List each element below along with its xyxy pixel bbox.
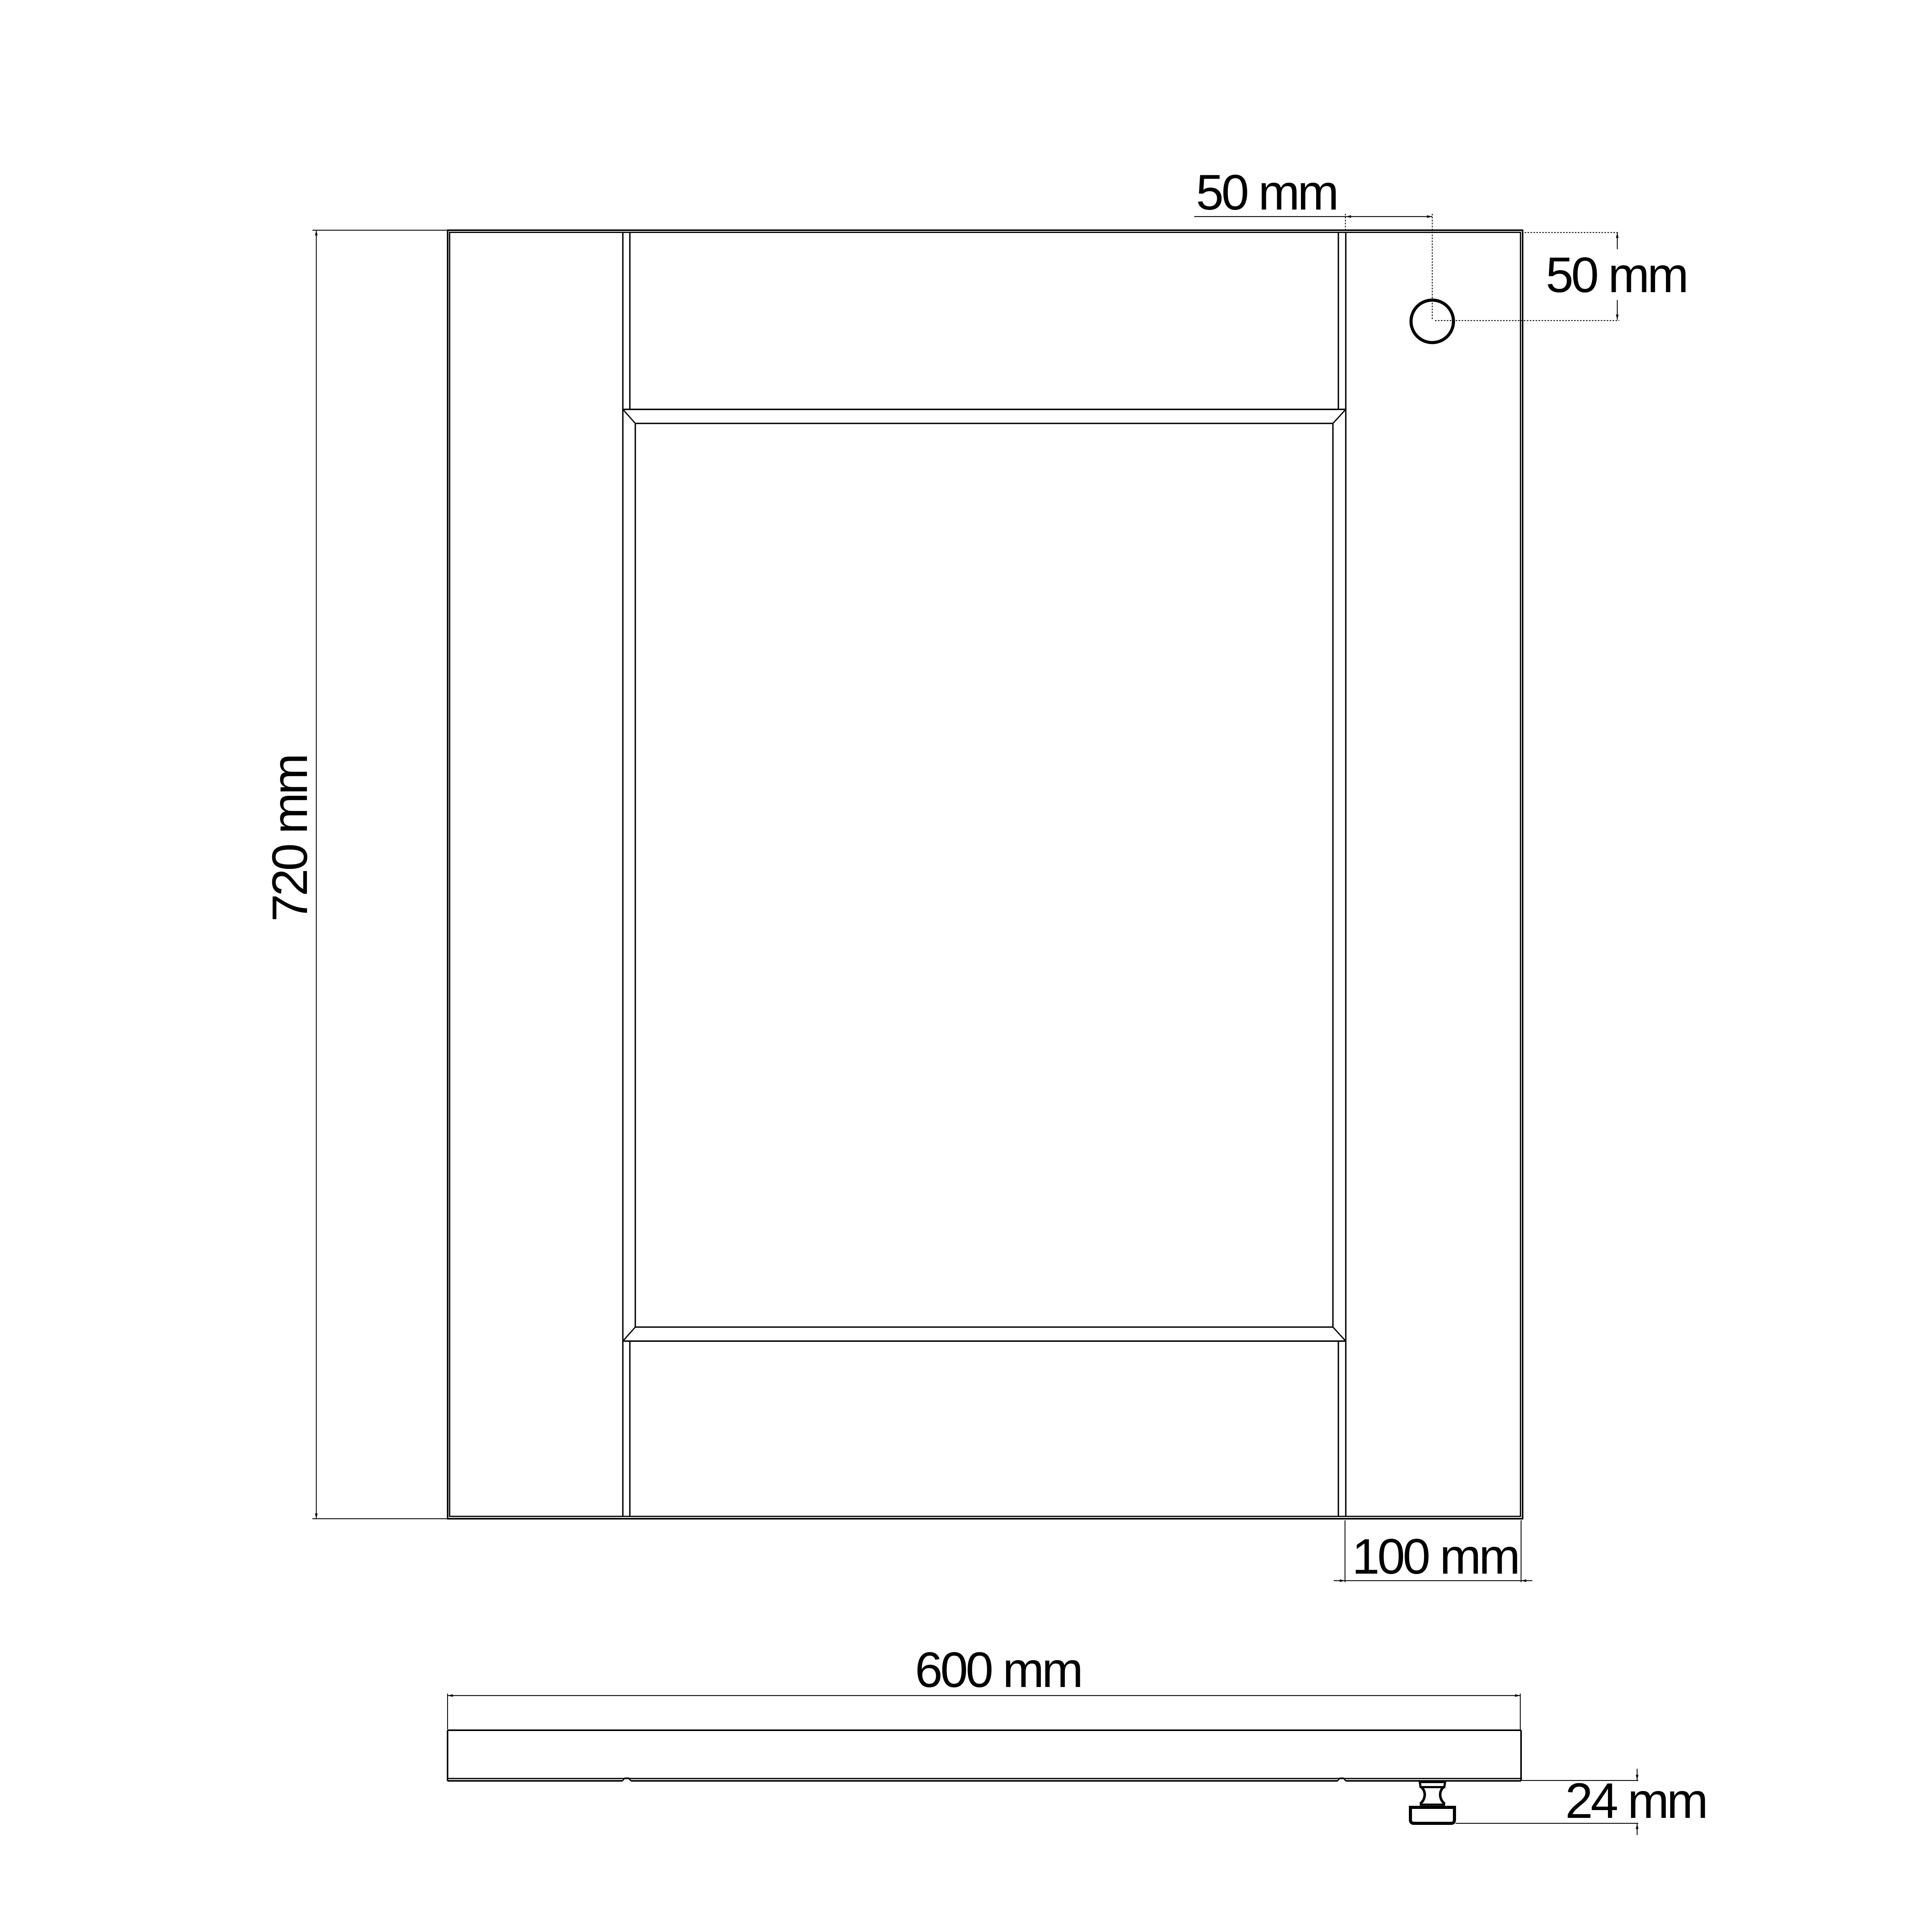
- svg-text:100 mm: 100 mm: [1352, 1529, 1518, 1585]
- svg-text:50 mm: 50 mm: [1196, 165, 1336, 220]
- svg-text:24 mm: 24 mm: [1565, 1773, 1706, 1829]
- svg-text:600 mm: 600 mm: [915, 1642, 1081, 1698]
- svg-text:720 mm: 720 mm: [262, 756, 318, 922]
- svg-text:50 mm: 50 mm: [1546, 247, 1686, 303]
